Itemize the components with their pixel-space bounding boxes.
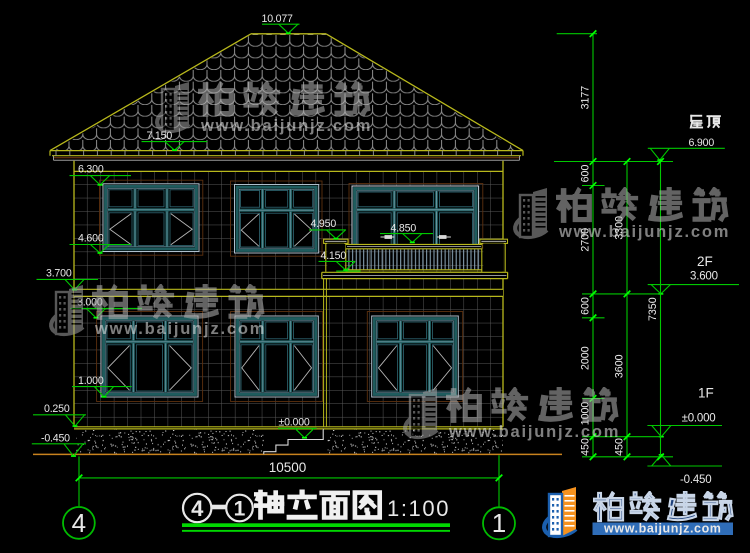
svg-text:600: 600 <box>580 165 592 183</box>
svg-text:-0.450: -0.450 <box>680 474 711 486</box>
svg-text:6.300: 6.300 <box>78 164 104 176</box>
svg-text:4.850: 4.850 <box>391 222 417 234</box>
svg-text:1: 1 <box>492 508 506 538</box>
svg-text:7350: 7350 <box>647 297 659 321</box>
svg-text:3177: 3177 <box>580 86 592 110</box>
svg-text:600: 600 <box>580 297 592 315</box>
svg-text:www.baijunjz.com: www.baijunjz.com <box>558 223 730 241</box>
svg-text:1F: 1F <box>698 385 714 400</box>
svg-text:4: 4 <box>191 496 204 521</box>
svg-text:10.077: 10.077 <box>262 13 294 25</box>
svg-text:2000: 2000 <box>580 346 592 370</box>
svg-text:6.900: 6.900 <box>689 137 715 149</box>
svg-text:-0.450: -0.450 <box>41 432 70 444</box>
svg-text:1.000: 1.000 <box>78 375 104 387</box>
svg-text:www.baijunjz.com: www.baijunjz.com <box>448 423 620 441</box>
svg-text:0.250: 0.250 <box>44 403 70 415</box>
svg-text:3.600: 3.600 <box>690 271 718 283</box>
svg-text:3.700: 3.700 <box>46 268 72 280</box>
svg-text:4.600: 4.600 <box>78 233 104 245</box>
svg-text:4.150: 4.150 <box>321 250 347 262</box>
svg-text:www.baijunjz.com: www.baijunjz.com <box>200 117 372 135</box>
svg-text:7.150: 7.150 <box>147 130 173 142</box>
svg-text:±0.000: ±0.000 <box>682 412 716 424</box>
svg-text:www.baijunjz.com: www.baijunjz.com <box>94 320 266 338</box>
svg-text:4.950: 4.950 <box>311 218 337 230</box>
svg-text:www.baijunjz.com: www.baijunjz.com <box>603 522 721 536</box>
svg-text:4: 4 <box>72 508 86 538</box>
svg-text:3600: 3600 <box>614 354 626 378</box>
svg-text:1:100: 1:100 <box>387 496 450 521</box>
svg-text:1: 1 <box>234 498 246 521</box>
svg-text:±0.000: ±0.000 <box>279 416 310 428</box>
svg-text:10500: 10500 <box>269 460 307 475</box>
svg-text:2F: 2F <box>697 254 713 269</box>
